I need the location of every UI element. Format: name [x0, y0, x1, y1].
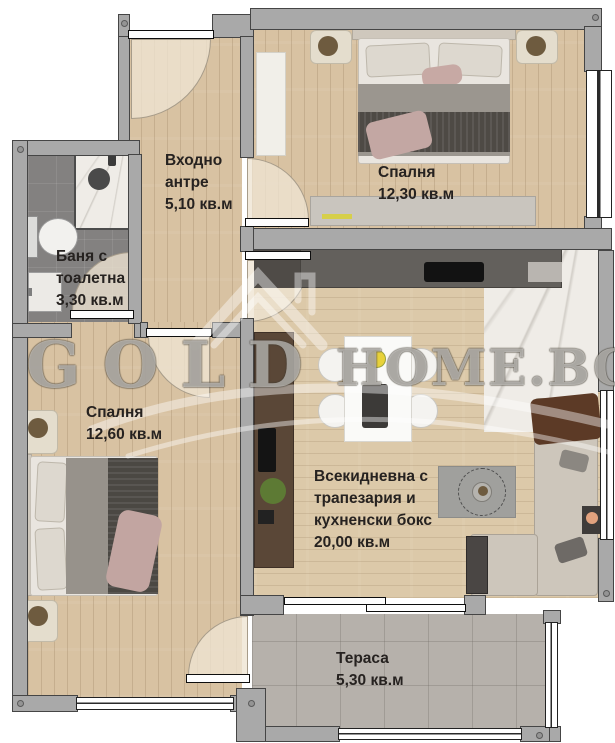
bathroom-label-area: 3,30 кв.м	[56, 290, 125, 312]
bathroom-label-line1: Баня с	[56, 246, 125, 268]
bedroom2-label-line1: Спалня	[86, 402, 162, 424]
living-label-line3: кухненски бокс	[314, 510, 432, 532]
living-label-line1: Всекидневна с	[314, 466, 432, 488]
floor-plan: Входно антре 5,10 кв.м Спалня 12,30 кв.м…	[0, 0, 615, 743]
terrace-label-area: 5,30 кв.м	[336, 670, 404, 692]
living-label-line2: трапезария и	[314, 488, 432, 510]
bathroom-label: Баня с тоалетна 3,30 кв.м	[56, 246, 125, 312]
bedroom1-label-line1: Спалня	[378, 162, 454, 184]
bedroom1-label: Спалня 12,30 кв.м	[378, 162, 454, 206]
watermark-gold-text: GOLD	[26, 328, 325, 403]
terrace-label: Тераса 5,30 кв.м	[336, 648, 404, 692]
bedroom2-label-area: 12,60 кв.м	[86, 424, 162, 446]
logo-chimney-icon	[298, 276, 312, 312]
hall-label-line1: Входно	[165, 150, 233, 172]
living-label: Всекидневна с трапезария и кухненски бок…	[314, 466, 432, 554]
logo-swoosh-2	[128, 419, 608, 456]
bathroom-label-line2: тоалетна	[56, 268, 125, 290]
watermark-home-text: HOME.BG	[336, 338, 615, 397]
living-label-area: 20,00 кв.м	[314, 532, 432, 554]
terrace-label-line1: Тераса	[336, 648, 404, 670]
hall-label: Входно антре 5,10 кв.м	[165, 150, 233, 216]
bedroom2-label: Спалня 12,60 кв.м	[86, 402, 162, 446]
bedroom1-label-area: 12,30 кв.м	[378, 184, 454, 206]
hall-label-area: 5,10 кв.м	[165, 194, 233, 216]
hall-label-line2: антре	[165, 172, 233, 194]
